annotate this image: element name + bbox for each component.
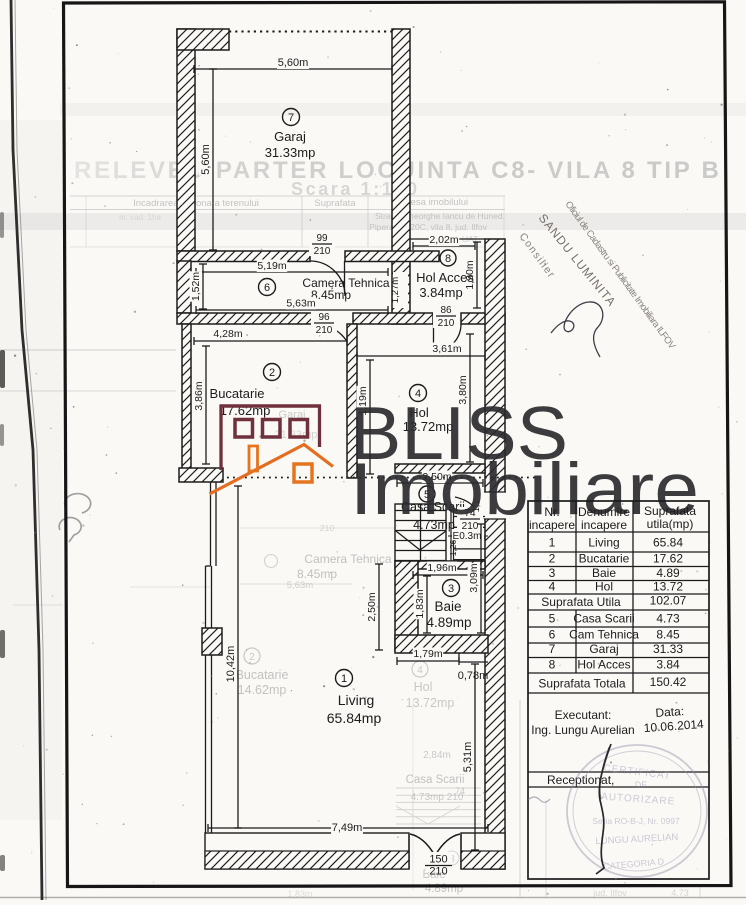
svg-text:210: 210 xyxy=(314,246,331,257)
svg-text:3.84mp: 3.84mp xyxy=(419,285,462,300)
svg-text:Suprafata: Suprafata xyxy=(644,504,696,518)
svg-text:4.89mp: 4.89mp xyxy=(426,615,471,630)
svg-text:5,19m: 5,19m xyxy=(257,260,286,272)
svg-text:Nr.: Nr. xyxy=(544,505,559,519)
svg-text:Pipera, nr. 20C, vila 8, jud.: Pipera, nr. 20C, vila 8, jud. Ilfov xyxy=(369,222,487,232)
svg-text:4.73: 4.73 xyxy=(656,612,680,626)
svg-text:1,96m: 1,96m xyxy=(427,562,456,574)
svg-text:210: 210 xyxy=(429,866,447,878)
svg-text:8: 8 xyxy=(549,658,556,672)
svg-text:4: 4 xyxy=(549,580,556,594)
svg-text:65.84: 65.84 xyxy=(653,536,683,550)
svg-text:Casa Scarii: Casa Scarii xyxy=(573,612,634,626)
svg-text:1,83m: 1,83m xyxy=(414,589,426,618)
svg-text:8.45mp: 8.45mp xyxy=(297,567,337,581)
svg-text:Living: Living xyxy=(588,536,619,550)
svg-text:4: 4 xyxy=(417,665,423,676)
svg-text:1,52m: 1,52m xyxy=(190,272,202,301)
svg-text:8.45mp: 8.45mp xyxy=(311,288,351,302)
svg-text:5,60m: 5,60m xyxy=(278,57,309,69)
svg-text:Suprafata Totala: Suprafata Totala xyxy=(538,677,626,691)
svg-text:Casa Scarii: Casa Scarii xyxy=(406,774,465,786)
svg-text:13.72: 13.72 xyxy=(653,580,683,594)
svg-text:Hol: Hol xyxy=(595,580,613,594)
svg-text:7: 7 xyxy=(288,112,294,124)
svg-text:1,90m: 1,90m xyxy=(464,260,476,289)
svg-text:DE: DE xyxy=(635,780,648,790)
svg-text:Bucatarie: Bucatarie xyxy=(236,668,289,682)
svg-text:4,28m: 4,28m xyxy=(213,328,242,340)
svg-text:86: 86 xyxy=(440,305,452,316)
svg-text:31.33: 31.33 xyxy=(653,642,683,656)
svg-text:Seria RO-B-J, Nr. 0997: Seria RO-B-J, Nr. 0997 xyxy=(592,816,680,826)
svg-text:Garaj: Garaj xyxy=(274,129,306,144)
svg-text:Hol: Hol xyxy=(414,680,433,694)
svg-text:2: 2 xyxy=(249,652,255,663)
svg-text:3: 3 xyxy=(448,583,454,595)
svg-text:Incadrarea in zona a terenului: Incadrarea in zona a terenului xyxy=(133,198,259,209)
svg-text:utila(mp): utila(mp) xyxy=(647,517,694,531)
svg-text:2,50m: 2,50m xyxy=(366,592,378,621)
svg-text:5,63m: 5,63m xyxy=(286,298,315,310)
svg-text:3,61m: 3,61m xyxy=(432,343,461,355)
svg-text:99: 99 xyxy=(316,233,328,244)
svg-text:4.73mp 210: 4.73mp 210 xyxy=(411,792,464,803)
svg-text:65.84mp: 65.84mp xyxy=(327,710,382,726)
svg-text:10,42m: 10,42m xyxy=(225,646,237,683)
svg-text:3,86m: 3,86m xyxy=(193,381,205,410)
svg-text:0,78m: 0,78m xyxy=(458,670,489,682)
svg-text:31.33mp: 31.33mp xyxy=(265,145,316,160)
svg-text:3.84: 3.84 xyxy=(656,658,680,672)
svg-text:150: 150 xyxy=(429,854,447,866)
svg-text:incapere: incapere xyxy=(581,518,627,532)
svg-text:jud. Ilfov: jud. Ilfov xyxy=(592,888,627,898)
svg-text:8: 8 xyxy=(445,253,451,265)
svg-text:4.89: 4.89 xyxy=(656,566,680,580)
svg-text:1,27m: 1,27m xyxy=(390,277,401,303)
svg-text:Suprafata: Suprafata xyxy=(314,198,356,209)
svg-text:2,84m: 2,84m xyxy=(423,750,451,761)
svg-text:17.62: 17.62 xyxy=(653,552,683,566)
svg-text:Hol Acces: Hol Acces xyxy=(577,658,630,672)
svg-text:Ing. Lungu Aurelian: Ing. Lungu Aurelian xyxy=(531,723,634,737)
svg-text:Receptionat,: Receptionat, xyxy=(547,773,614,787)
svg-text:1: 1 xyxy=(549,536,556,550)
svg-text:nr. cad. 1ha: nr. cad. 1ha xyxy=(119,213,161,222)
svg-text:5,60m: 5,60m xyxy=(200,144,212,175)
svg-text:1: 1 xyxy=(341,673,347,685)
svg-text:1,79m: 1,79m xyxy=(413,648,442,660)
svg-text:150.42: 150.42 xyxy=(650,675,687,689)
svg-text:5,31m: 5,31m xyxy=(462,742,474,773)
svg-text:Living: Living xyxy=(338,692,375,708)
svg-text:1,26: 1,26 xyxy=(448,539,458,556)
svg-text:96: 96 xyxy=(318,312,330,323)
svg-text:4.73: 4.73 xyxy=(671,888,689,898)
svg-text:210: 210 xyxy=(316,325,333,336)
svg-text:6: 6 xyxy=(549,628,556,642)
svg-text:2: 2 xyxy=(269,367,275,379)
svg-text:2: 2 xyxy=(549,552,556,566)
svg-text:incapere: incapere xyxy=(529,518,575,532)
svg-text:Bucatarie: Bucatarie xyxy=(579,552,630,566)
svg-text:7: 7 xyxy=(549,642,556,656)
svg-text:Bucatarie: Bucatarie xyxy=(210,386,265,401)
svg-text:5: 5 xyxy=(549,612,556,626)
svg-text:Executant:: Executant: xyxy=(555,708,612,722)
svg-text:5,63m: 5,63m xyxy=(287,580,313,591)
svg-text:Garaj: Garaj xyxy=(589,642,618,656)
svg-text:3: 3 xyxy=(549,566,556,580)
svg-text:Baie: Baie xyxy=(592,566,616,580)
svg-text:Cam Tehnica: Cam Tehnica xyxy=(569,628,639,642)
svg-text:7,49m: 7,49m xyxy=(332,822,363,834)
svg-text:3,09m: 3,09m xyxy=(468,563,480,592)
svg-text:210: 210 xyxy=(438,318,455,329)
svg-text:2,02m: 2,02m xyxy=(429,234,458,246)
svg-text:Suprafata Utila: Suprafata Utila xyxy=(541,595,621,609)
svg-text:Baie: Baie xyxy=(434,599,461,614)
svg-text:Denumire: Denumire xyxy=(578,505,630,519)
svg-text:14.62mp: 14.62mp xyxy=(238,683,287,697)
svg-text:8.45: 8.45 xyxy=(656,628,680,642)
